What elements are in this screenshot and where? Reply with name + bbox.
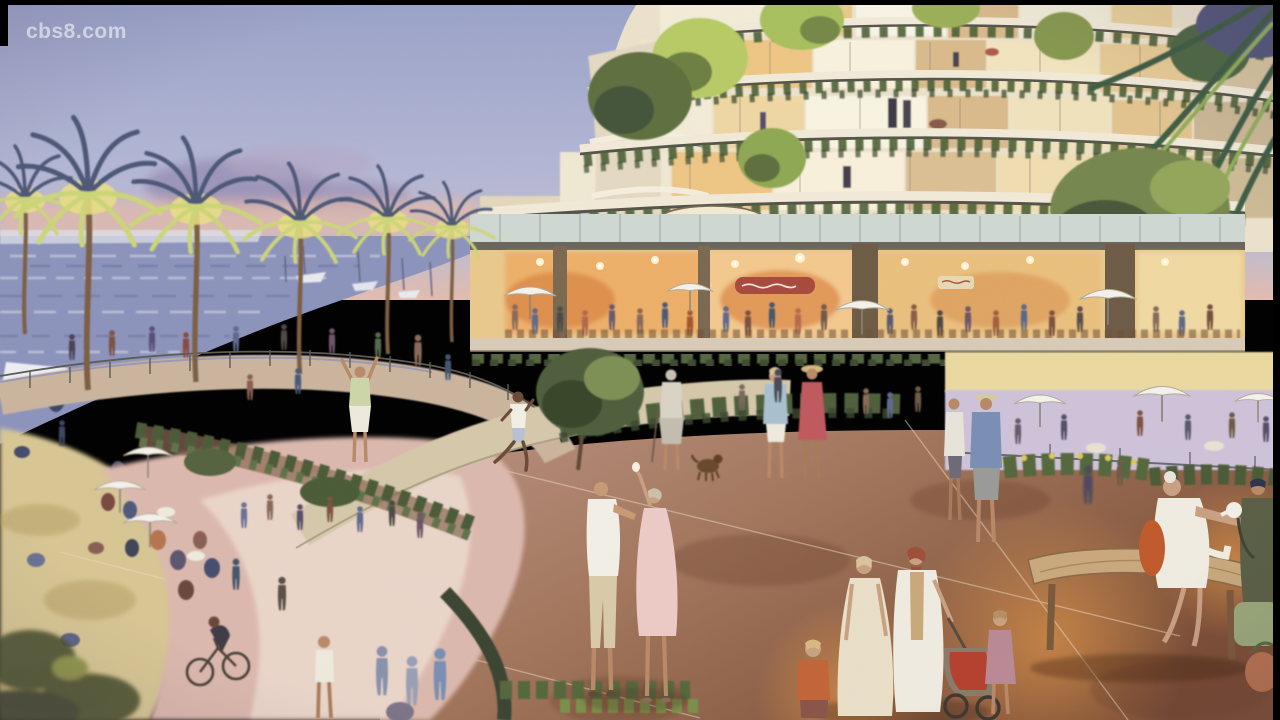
- letterbox-right: [1273, 0, 1280, 720]
- vignette: [0, 0, 1280, 720]
- rendering-illustration: [0, 0, 1280, 720]
- video-frame: cbs8.com: [0, 0, 1280, 720]
- letterbox-corner: [0, 0, 8, 46]
- station-watermark: cbs8.com: [26, 20, 127, 44]
- letterbox-top: [0, 0, 1280, 5]
